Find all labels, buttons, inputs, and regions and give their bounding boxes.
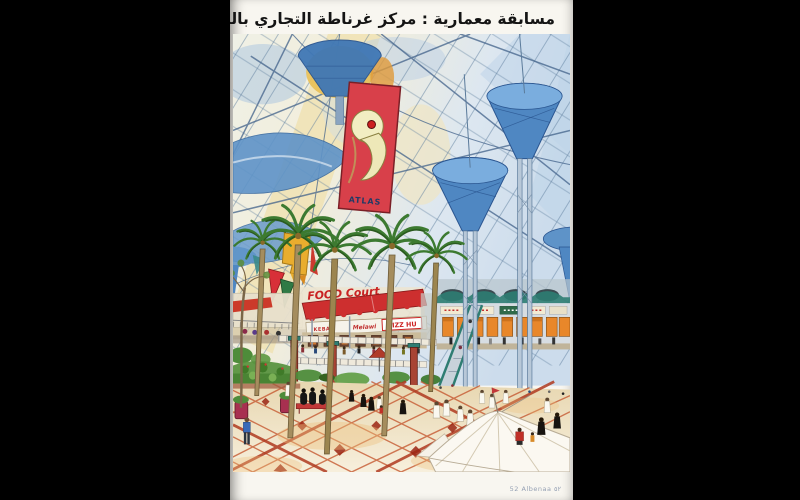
shop-sign-melawi: Melawi bbox=[353, 323, 378, 331]
right-shops bbox=[421, 279, 570, 349]
mall-rendering-illustration: ATLAS FOOD Court bbox=[233, 34, 570, 472]
page-title: مسابقة معمارية : مركز غرناطة التجاري بال… bbox=[230, 0, 573, 32]
magazine-page: مسابقة معمارية : مركز غرناطة التجاري بال… bbox=[230, 0, 573, 500]
page-footer: 52 Albenaa ٥٢ bbox=[510, 485, 561, 493]
bird-logo-banner: ATLAS bbox=[339, 82, 401, 213]
